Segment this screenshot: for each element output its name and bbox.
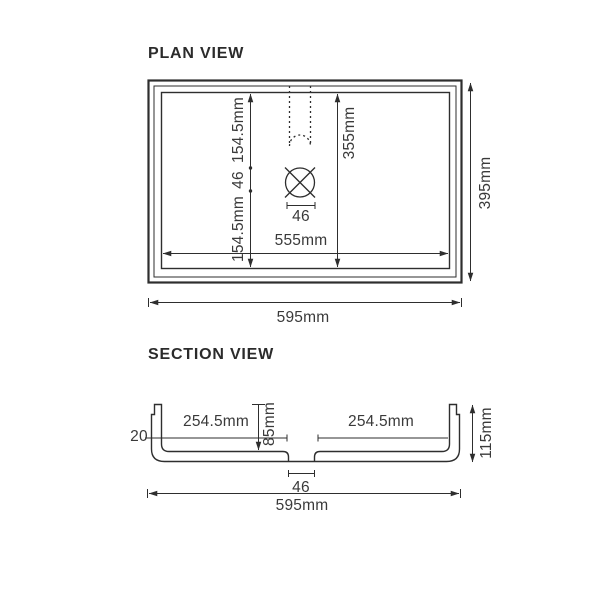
plan-dim-line-segments [249,94,252,267]
section-dim-edge-thickness: 20 [130,428,148,446]
section-dim-waste-width: 46 [292,479,310,497]
plan-outer-rect [149,81,462,283]
plan-view-title: PLAN VIEW [148,45,244,63]
drain-symbol [285,168,315,198]
section-dim-right-span: 254.5mm [348,413,414,431]
section-dim-left-span: 254.5mm [183,413,249,431]
plan-dim-overall-width: 395mm [477,157,495,210]
plan-dim-overall-length: 595mm [277,309,330,327]
sink-technical-drawing: PLAN VIEW 154.5mm 46 154.5mm 355mm 46 55… [0,0,600,600]
plan-drawing [149,81,471,308]
plan-dim-bowl-length: 555mm [275,232,328,250]
section-dim-bowl-depth: 85mm [261,402,279,446]
section-dim-overall-length: 595mm [276,497,329,515]
plan-dim-seg-mid: 46 [230,171,248,189]
section-dim-line-right-254 [318,435,448,442]
section-dim-line-46 [289,470,315,477]
plan-dim-seg-top: 154.5mm [230,97,248,163]
plan-dim-seg-bottom: 154.5mm [230,196,248,262]
plan-dim-bowl-width: 355mm [341,107,359,160]
plan-dim-waste-width: 46 [292,208,310,226]
section-view-title: SECTION VIEW [148,346,274,364]
plan-dim-line-595 [149,298,462,307]
tap-outline [290,86,311,146]
section-dim-overall-height: 115mm [478,407,496,459]
